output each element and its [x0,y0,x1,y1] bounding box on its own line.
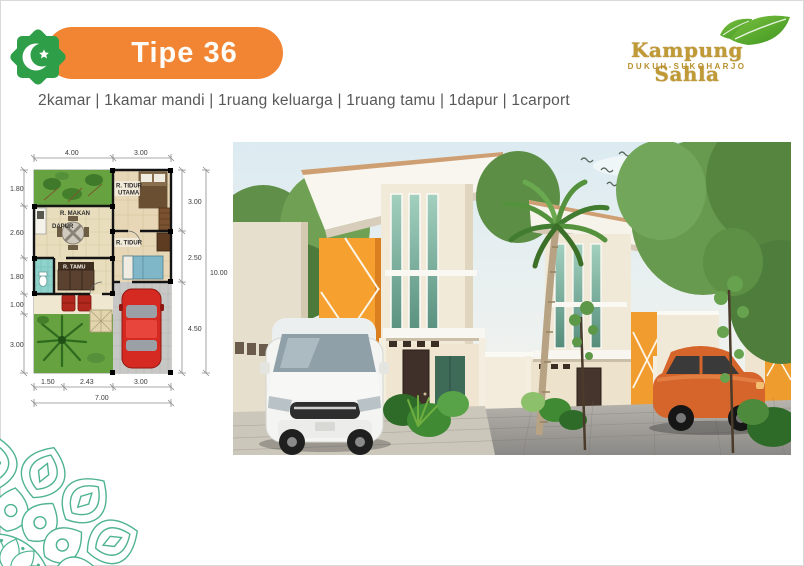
carport [113,282,171,373]
mandala-ornament [0,435,150,566]
red-car-topview [119,289,164,368]
dim-left-1: 1.80 [10,186,24,193]
dim-left-2: 2.60 [10,230,24,237]
logo-subtitle: DUKUH-SUKOHARJO [604,62,770,71]
room-tidur-utama: R. TIDUR UTAMA [113,170,171,231]
label-tidur: R. TIDUR [116,241,143,247]
room-dapur-makan: DAPUR R. MAKAN [34,206,113,258]
dim-bottom-3: 3.00 [134,379,148,386]
feature-list: 2kamar | 1kamar mandi | 1ruang keluarga … [38,92,638,110]
dim-top-1: 4.00 [65,150,79,157]
leaf-icon [718,8,798,52]
dim-right-3: 4.50 [188,326,202,333]
floor-plan: DAPUR R. MAKAN R. TAMU [10,144,232,416]
room-tidur: R. TIDUR [113,231,171,282]
type-banner: Tipe 36 [46,27,283,79]
dim-top-2: 3.00 [134,150,148,157]
room-bathroom [34,258,54,294]
label-tidur-utama-2: UTAMA [118,191,140,197]
dim-left-4: 1.00 [10,302,24,309]
dim-right-1: 3.00 [188,199,202,206]
dim-left-5: 3.00 [10,342,24,349]
dim-bottom-2: 2.43 [80,379,94,386]
label-tidur-utama-1: R. TIDUR [116,184,143,190]
garden-front [34,170,113,206]
flyer-page: Tipe 36 Kampung Sahla DUKUH-SUKOHARJO 2k… [0,0,804,566]
dim-left-3: 1.80 [10,274,24,281]
white-van [259,318,391,455]
exterior-render [233,142,791,455]
dim-bottom-total: 7.00 [95,395,109,402]
label-dapur: DAPUR [52,224,74,230]
crescent-star-icon [6,25,70,89]
label-makan: R. MAKAN [60,211,90,217]
type-title: Tipe 36 [86,27,283,79]
dim-bottom-1: 1.50 [41,379,55,386]
room-tamu: R. TAMU [54,258,113,294]
dim-right-total: 10.00 [210,270,228,277]
label-tamu: R. TAMU [63,265,86,271]
dim-right-2: 2.50 [188,255,202,262]
